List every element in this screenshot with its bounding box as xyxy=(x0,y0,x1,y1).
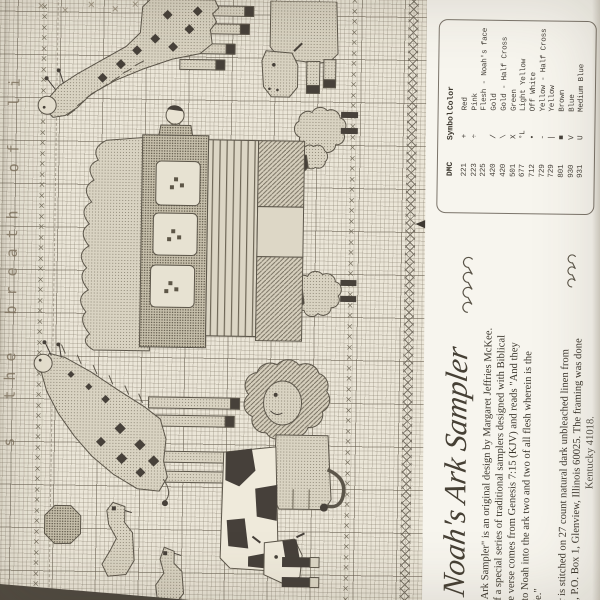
color-name: Blue xyxy=(568,24,577,112)
text-line: Kentucky 41018. xyxy=(584,277,600,489)
color-name: Red xyxy=(462,22,471,110)
stitch-symbol: / xyxy=(490,119,498,139)
dmc-number: 931 xyxy=(577,150,585,178)
stitch-symbol: V xyxy=(568,120,576,140)
stitch-symbol: X xyxy=(510,119,518,139)
giraffe-top-motif xyxy=(38,0,254,120)
header-color: Color xyxy=(447,86,456,110)
dmc-number: 729 xyxy=(538,149,546,177)
stitch-symbol: U xyxy=(578,120,586,140)
dmc-number: 729 xyxy=(548,150,556,178)
color-name: Yellow - Half Cross xyxy=(539,23,548,111)
materials-paragraph: er is stitched on 27 count natural dark … xyxy=(556,277,600,600)
stitch-symbol: ÷ xyxy=(471,118,479,138)
stitch-symbol: | xyxy=(549,120,557,140)
stitch-symbol: ■ xyxy=(558,120,566,140)
goose-motif xyxy=(102,502,135,576)
giraffe-bottom-motif xyxy=(32,340,242,507)
dmc-number: 677 xyxy=(519,149,527,177)
color-name: Flesh - Noah's face xyxy=(481,23,490,111)
dmc-number: 801 xyxy=(558,150,566,178)
header-symbol: Symbol xyxy=(446,111,455,140)
dmc-number: 225 xyxy=(480,149,488,177)
dmc-number: 930 xyxy=(567,150,575,178)
description-paragraph: s Ark Sampler" is an original design by … xyxy=(479,276,550,600)
stitch-symbol: - xyxy=(539,119,547,139)
duck-motif xyxy=(155,547,184,600)
color-key-box: DMC Symbol Color 221+Red 223÷Pink 225Fle… xyxy=(436,19,597,215)
stitch-symbol: • xyxy=(529,119,537,139)
color-name: Green xyxy=(510,23,519,111)
dmc-number: 420 xyxy=(490,149,498,177)
color-name: Gold xyxy=(491,23,500,111)
color-name: Pink xyxy=(471,22,480,110)
stitch-symbol: + xyxy=(461,118,469,138)
chart-motifs xyxy=(0,0,445,600)
stitch-symbol: \ xyxy=(500,119,508,139)
ball-motif xyxy=(44,505,81,544)
color-name: Yellow xyxy=(549,24,558,112)
noahs-ark-motif xyxy=(80,104,305,353)
graph-paper: s the breath of li × × × × × × × × × × ×… xyxy=(0,0,495,600)
color-name: Gold - Half Cross xyxy=(500,23,509,111)
key-row: 931UMedium Blue xyxy=(577,22,589,214)
header-dmc: DMC xyxy=(446,162,455,177)
color-name: Medium Blue xyxy=(578,24,587,112)
border-stitch-marks xyxy=(39,0,138,14)
ox-motif xyxy=(261,1,338,98)
stitch-symbol: °L xyxy=(519,119,527,139)
color-name: Brown xyxy=(559,24,568,112)
dmc-number: 501 xyxy=(509,149,517,177)
dmc-number: 712 xyxy=(529,149,537,177)
color-name: Off White xyxy=(530,23,539,111)
color-key-header: DMC Symbol Color xyxy=(437,20,440,212)
photo-frame: DMC Symbol Color 221+Red 223÷Pink 225Fle… xyxy=(0,0,600,600)
color-name: Light Yellow xyxy=(520,23,529,111)
dmc-number: 221 xyxy=(461,148,469,176)
dmc-number: 223 xyxy=(470,148,478,176)
dmc-number: 420 xyxy=(500,149,508,177)
